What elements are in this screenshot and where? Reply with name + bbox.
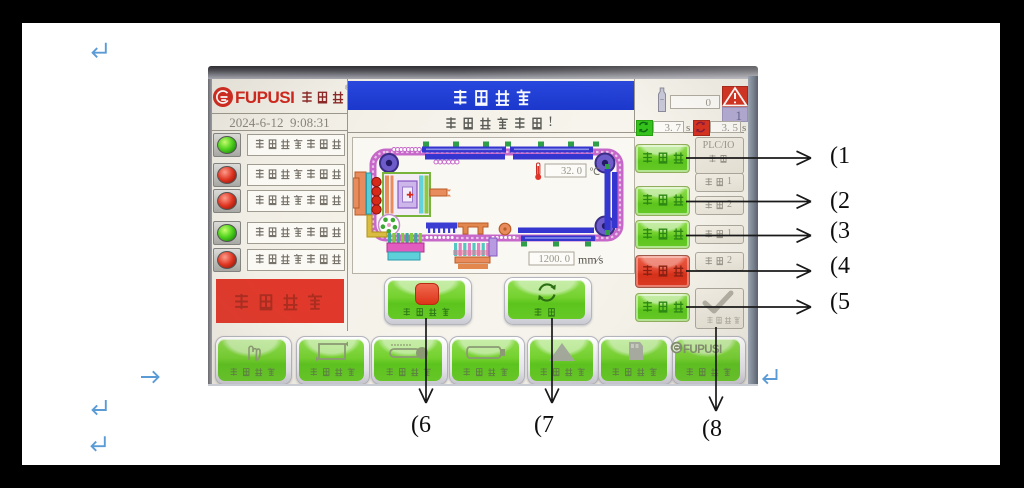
svg-text:mm∕s: mm∕s	[578, 253, 604, 267]
svg-text:1200. 0: 1200. 0	[539, 254, 571, 265]
svg-text:32. 0: 32. 0	[561, 166, 582, 177]
svg-text:℃: ℃	[589, 167, 600, 178]
